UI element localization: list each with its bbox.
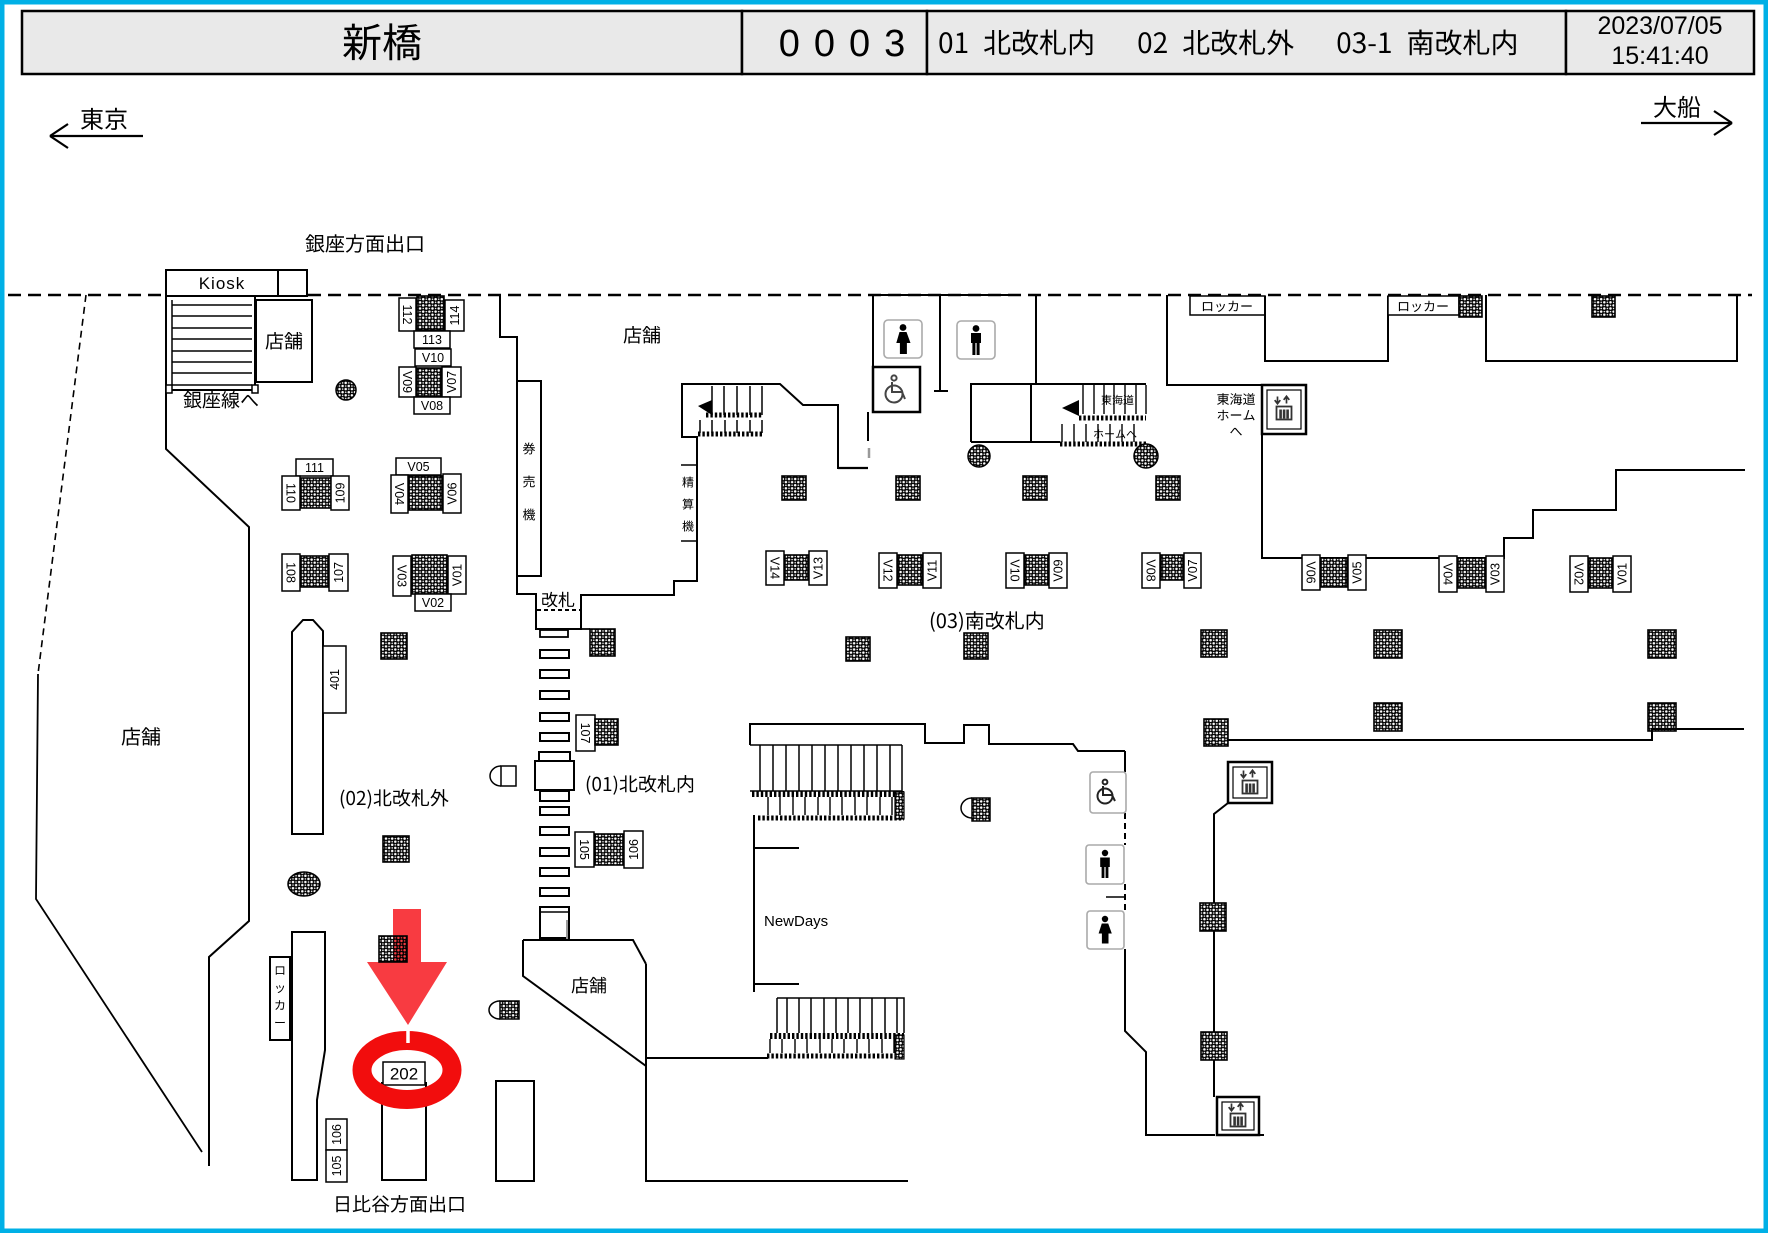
svg-text:V06: V06 [1304,561,1318,583]
svg-text:V01: V01 [1615,563,1629,585]
svg-text:202: 202 [390,1064,418,1083]
svg-text:V08: V08 [421,399,443,413]
svg-text:V11: V11 [925,560,939,581]
svg-text:V02: V02 [422,596,444,610]
svg-text:V06: V06 [445,482,459,504]
svg-text:V09: V09 [400,371,414,393]
svg-text:V07: V07 [1186,559,1200,581]
svg-text:V08: V08 [1144,559,1158,581]
svg-text:V09: V09 [1051,559,1065,581]
svg-text:2023/07/05: 2023/07/05 [1597,12,1722,40]
svg-text:V04: V04 [392,483,406,505]
svg-text:15:41:40: 15:41:40 [1611,42,1708,70]
svg-text:106: 106 [330,1124,344,1145]
svg-text:V05: V05 [407,460,429,474]
svg-text:V14: V14 [768,557,782,579]
svg-text:V07: V07 [445,371,459,393]
svg-text:107: 107 [332,562,346,583]
svg-text:107: 107 [578,723,592,744]
svg-text:V10: V10 [1008,559,1022,581]
svg-text:110: 110 [284,483,298,503]
svg-text:109: 109 [333,483,347,504]
svg-text:111: 111 [305,461,324,475]
svg-text:V01: V01 [450,564,464,586]
svg-text:V03: V03 [1488,563,1502,585]
svg-text:V13: V13 [811,557,825,579]
svg-text:V04: V04 [1441,563,1455,585]
svg-text:V05: V05 [1350,561,1364,583]
svg-text:V10: V10 [422,351,444,365]
svg-text:V03: V03 [395,565,409,587]
svg-text:401: 401 [328,669,342,690]
svg-text:V12: V12 [881,559,895,581]
svg-text:106: 106 [627,839,641,860]
svg-text:108: 108 [284,562,298,583]
svg-text:V02: V02 [1572,563,1586,585]
svg-text:105: 105 [577,839,591,860]
svg-text:113: 113 [422,333,442,347]
svg-text:105: 105 [330,1156,344,1177]
svg-text:NewDays: NewDays [764,913,828,930]
svg-text:0003: 0003 [779,23,920,65]
svg-text:Kiosk: Kiosk [199,274,246,293]
svg-text:114: 114 [448,305,462,325]
svg-text:112: 112 [400,305,414,325]
